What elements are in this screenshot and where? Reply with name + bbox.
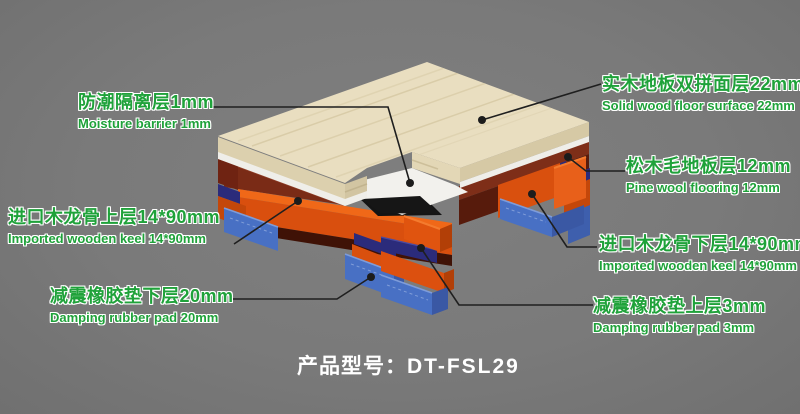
- label-rubber-pad-upper: 减震橡胶垫上层3mm Damping rubber pad 3mm: [593, 297, 766, 334]
- product-model-code: DT-FSL29: [407, 355, 520, 378]
- label-zh: 松木毛地板层12mm: [626, 157, 791, 175]
- label-en: Imported wooden keel 14*90mm: [8, 232, 220, 245]
- label-zh: 进口木龙骨下层14*90mm: [599, 235, 800, 253]
- rubber-pad-lower-side: [432, 287, 448, 315]
- label-pine-flooring: 松木毛地板层12mm Pine wool flooring 12mm: [626, 157, 791, 194]
- product-diagram-image: 防潮隔离层1mm Moisture barrier 1mm 实木地板双拼面层22…: [0, 0, 800, 414]
- label-zh: 减震橡胶垫上层3mm: [593, 297, 766, 315]
- label-en: Damping rubber pad 3mm: [593, 321, 766, 334]
- product-model-label: 产品型号：: [297, 355, 407, 378]
- label-rubber-pad-lower: 减震橡胶垫下层20mm Damping rubber pad 20mm: [50, 287, 234, 324]
- label-en: Moisture barrier 1mm: [78, 117, 214, 130]
- label-moisture-barrier: 防潮隔离层1mm Moisture barrier 1mm: [78, 93, 214, 130]
- label-en: Imported wooden keel 14*90mm: [599, 259, 800, 272]
- label-zh: 进口木龙骨上层14*90mm: [8, 208, 220, 226]
- label-zh: 防潮隔离层1mm: [78, 93, 214, 111]
- label-zh: 实木地板双拼面层22mm: [602, 75, 800, 93]
- product-model: 产品型号：DT-FSL29: [297, 350, 520, 380]
- label-en: Pine wool flooring 12mm: [626, 181, 791, 194]
- label-keel-upper: 进口木龙骨上层14*90mm Imported wooden keel 14*9…: [8, 208, 220, 245]
- label-keel-lower: 进口木龙骨下层14*90mm Imported wooden keel 14*9…: [599, 235, 800, 272]
- label-solid-wood-surface: 实木地板双拼面层22mm Solid wood floor surface 22…: [602, 75, 800, 112]
- label-en: Solid wood floor surface 22mm: [602, 99, 800, 112]
- label-zh: 减震橡胶垫下层20mm: [50, 287, 234, 305]
- label-en: Damping rubber pad 20mm: [50, 311, 234, 324]
